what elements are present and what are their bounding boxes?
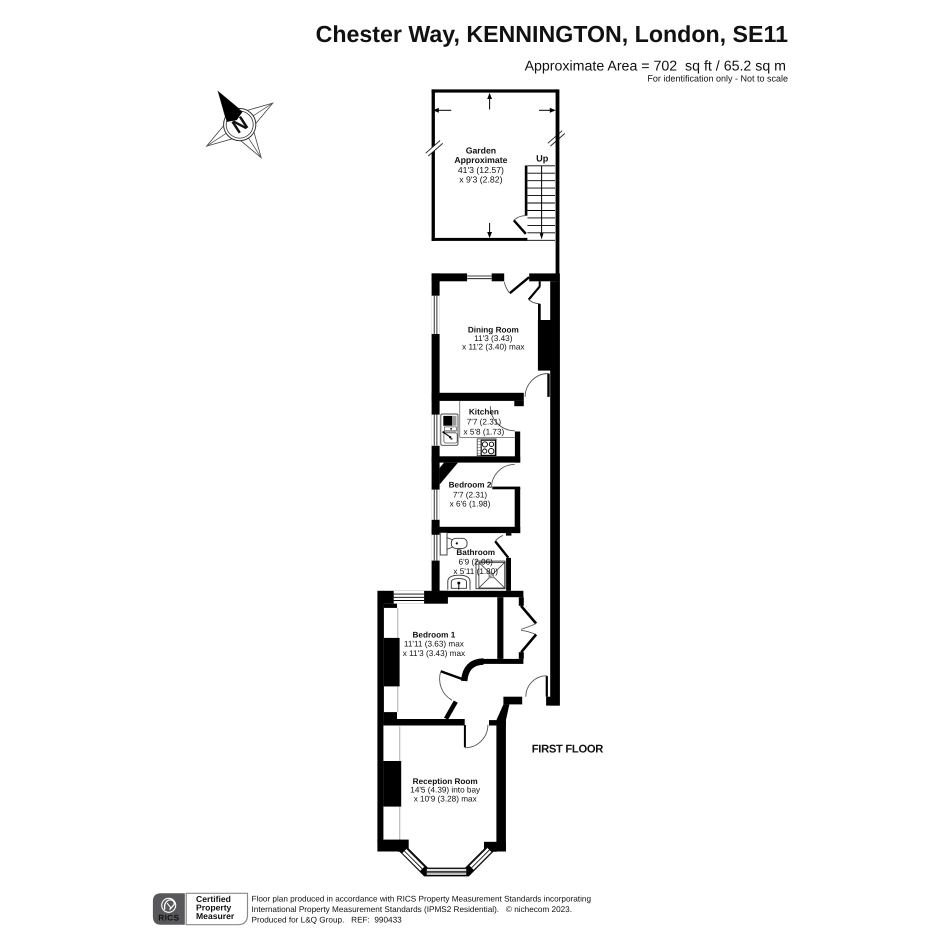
svg-text:x 5'11 (1.80): x 5'11 (1.80) bbox=[453, 567, 498, 576]
svg-text:x 5'8 (1.73): x 5'8 (1.73) bbox=[464, 428, 505, 437]
svg-text:Reception Room: Reception Room bbox=[413, 777, 478, 786]
svg-text:x 6'6 (1.98): x 6'6 (1.98) bbox=[450, 500, 491, 509]
svg-text:Approximate Area = 702 sq ft: Approximate Area = 702 sq ft / 65.2 sq m bbox=[525, 59, 786, 75]
svg-text:Bathroom: Bathroom bbox=[456, 548, 495, 557]
svg-text:Bedroom 2: Bedroom 2 bbox=[449, 481, 492, 490]
svg-text:Kitchen: Kitchen bbox=[469, 408, 499, 417]
svg-text:Approximate: Approximate bbox=[454, 155, 507, 165]
svg-text:7'7 (2.31): 7'7 (2.31) bbox=[467, 417, 502, 426]
svg-text:Bedroom 1: Bedroom 1 bbox=[413, 630, 456, 639]
svg-text:x 10'9 (3.28) max: x 10'9 (3.28) max bbox=[414, 794, 477, 803]
svg-text:For identification only - Not: For identification only - Not to scale bbox=[647, 74, 788, 84]
svg-text:x 11'3 (3.43) max: x 11'3 (3.43) max bbox=[403, 649, 465, 658]
svg-text:Garden: Garden bbox=[466, 146, 496, 156]
svg-text:Floor plan produced in accorda: Floor plan produced in accordance with R… bbox=[252, 894, 592, 903]
svg-text:Up: Up bbox=[536, 153, 549, 163]
svg-text:FIRST FLOOR: FIRST FLOOR bbox=[532, 744, 603, 756]
svg-text:x 9'3 (2.82): x 9'3 (2.82) bbox=[459, 175, 502, 185]
svg-text:Measurer: Measurer bbox=[196, 911, 235, 921]
svg-text:Chester Way, KENNINGTON, Londo: Chester Way, KENNINGTON, London, SE11 bbox=[316, 21, 789, 47]
svg-text:6'9 (2.06): 6'9 (2.06) bbox=[459, 558, 494, 567]
svg-text:RICS: RICS bbox=[158, 913, 179, 923]
svg-text:Produced for L&Q Group. REF:: Produced for L&Q Group. REF: 990433 bbox=[252, 915, 403, 924]
svg-text:11'11 (3.63) max: 11'11 (3.63) max bbox=[404, 640, 464, 649]
svg-text:14'5 (4.39) into bay: 14'5 (4.39) into bay bbox=[410, 786, 481, 795]
svg-text:International Property Measure: International Property Measurement Stand… bbox=[252, 905, 573, 914]
svg-text:7'7 (2.31): 7'7 (2.31) bbox=[453, 490, 488, 499]
svg-text:41'3 (12.57): 41'3 (12.57) bbox=[458, 165, 504, 175]
svg-text:x 11'2 (3.40) max: x 11'2 (3.40) max bbox=[462, 343, 524, 352]
